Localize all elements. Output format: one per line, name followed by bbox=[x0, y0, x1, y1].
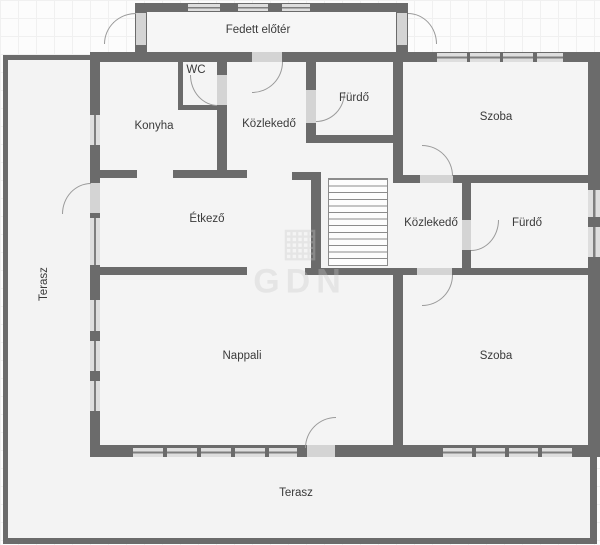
etkezo-nappali-wall bbox=[92, 267, 247, 275]
nappali-window bbox=[90, 341, 100, 371]
room-label-fedett-eloter: Fedett előtér bbox=[226, 24, 291, 36]
nappali-szoba-wall bbox=[393, 268, 403, 445]
terrace-bottom-area bbox=[90, 457, 590, 538]
furdo-top-door bbox=[306, 90, 316, 123]
porch-window bbox=[282, 4, 310, 11]
corridor-bottom-wall bbox=[452, 268, 600, 275]
konyha-kozlekedo-wall bbox=[217, 105, 227, 177]
szoba-top-bottom-wall bbox=[393, 175, 420, 183]
porch-window bbox=[238, 4, 268, 11]
szoba-bottom-door bbox=[417, 268, 452, 275]
szoba-bottom-window bbox=[542, 448, 572, 457]
room-label-terasz-left: Terasz bbox=[38, 267, 50, 301]
wc-bottom-wall bbox=[178, 105, 217, 110]
nappali-bottom-window bbox=[269, 448, 297, 457]
room-label-nappali: Nappali bbox=[223, 350, 262, 362]
furdo-mid-door bbox=[462, 220, 471, 250]
room-label-etkezo: Étkező bbox=[189, 213, 224, 225]
szoba-bottom-window bbox=[443, 448, 472, 457]
szoba-bottom-window bbox=[509, 448, 538, 457]
furdo-top-left-wall bbox=[306, 62, 316, 90]
kozlekedo-furdo-wall bbox=[462, 178, 471, 220]
terrace-bottom-wall bbox=[3, 538, 597, 544]
wc-right-wall bbox=[217, 62, 227, 75]
terrace-top-wall bbox=[3, 55, 91, 60]
room-label-terasz-bottom: Terasz bbox=[279, 487, 313, 499]
nappali-bottom-window bbox=[133, 448, 163, 457]
konyha-bottom-wall bbox=[173, 170, 227, 178]
etkezo-terrace-door bbox=[90, 183, 100, 213]
room-label-furdo-mid: Fürdő bbox=[512, 217, 542, 229]
staircase bbox=[328, 178, 388, 266]
szoba-top-window bbox=[503, 53, 533, 62]
szoba-bottom-window bbox=[476, 448, 505, 457]
nappali-bottom-window bbox=[201, 448, 231, 457]
konyha-window bbox=[90, 115, 100, 145]
furdo-szoba-divider bbox=[393, 62, 403, 182]
porch-left-door-arc bbox=[104, 13, 136, 44]
porch-left-opening bbox=[136, 13, 146, 45]
room-label-kozlekedo-mid: Közlekedő bbox=[404, 217, 458, 229]
stair-left-wall bbox=[311, 172, 321, 272]
terrace-right-wall bbox=[590, 455, 597, 543]
szoba-top-window bbox=[437, 53, 467, 62]
nappali-window bbox=[90, 300, 100, 331]
szoba-top-bottom-wall bbox=[453, 175, 600, 183]
room-label-szoba-bottom: Szoba bbox=[480, 350, 513, 362]
room-label-szoba-top: Szoba bbox=[480, 111, 513, 123]
kozlekedo-bottom-wall bbox=[227, 170, 247, 178]
furdo-window bbox=[588, 227, 600, 257]
terrace-left-wall bbox=[3, 55, 8, 543]
szoba-top-window bbox=[470, 53, 500, 62]
szoba-top-window bbox=[537, 53, 563, 62]
konyha-bottom-wall bbox=[100, 170, 137, 178]
wc-door bbox=[217, 75, 227, 105]
wc-left-wall bbox=[178, 62, 183, 110]
porch-top-wall bbox=[135, 3, 408, 12]
etkezo-window bbox=[90, 218, 100, 265]
room-label-konyha: Konyha bbox=[134, 120, 173, 132]
furdo-window bbox=[588, 190, 600, 217]
nappali-bottom-window bbox=[167, 448, 197, 457]
room-label-kozlekedo-top: Közlekedő bbox=[242, 118, 296, 130]
nappali-bottom-window bbox=[235, 448, 265, 457]
porch-window bbox=[188, 4, 220, 11]
porch-right-opening bbox=[397, 13, 407, 45]
szoba-top-door bbox=[420, 175, 453, 183]
entrance-door bbox=[252, 52, 282, 62]
porch-right-door-arc bbox=[408, 13, 437, 44]
nappali-window bbox=[90, 381, 100, 411]
room-label-wc: WC bbox=[186, 64, 205, 76]
floor-plan: ▦ GDN Fedett előtér WC Konyha Közlekedő … bbox=[0, 0, 600, 545]
furdo-top-bottom-wall bbox=[306, 135, 396, 143]
room-label-furdo-top: Fürdő bbox=[339, 92, 369, 104]
